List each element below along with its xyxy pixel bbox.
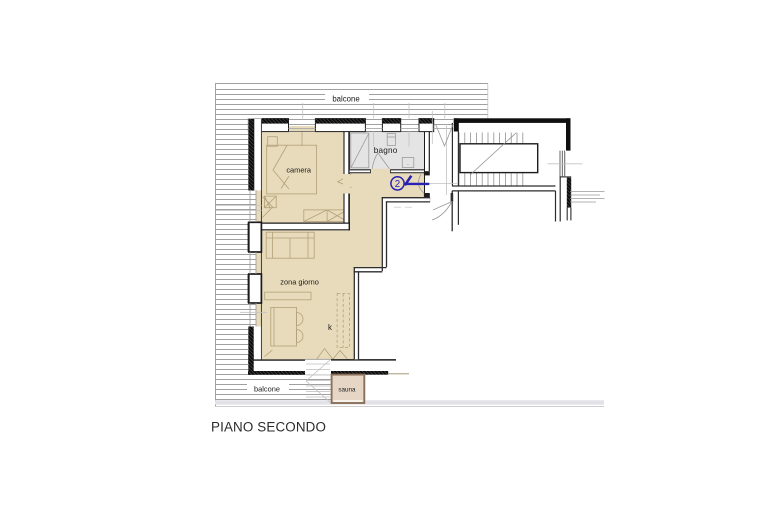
svg-text:PIANO SECONDO: PIANO SECONDO: [211, 420, 326, 435]
svg-text:camera: camera: [286, 165, 312, 174]
svg-text:sauna: sauna: [338, 387, 356, 394]
svg-text:balcone: balcone: [332, 95, 359, 104]
svg-text:k: k: [328, 323, 332, 332]
svg-text:bagno: bagno: [374, 146, 398, 155]
svg-text:zona giorno: zona giorno: [280, 277, 319, 286]
svg-text:balcone: balcone: [254, 385, 280, 394]
svg-text:2: 2: [395, 179, 400, 190]
